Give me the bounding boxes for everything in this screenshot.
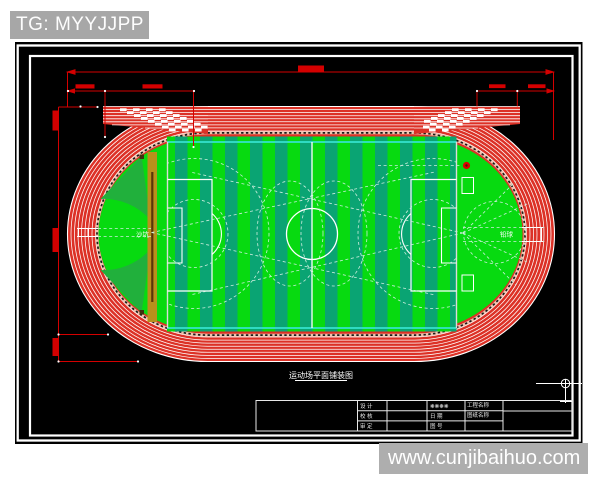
svg-text:铅球: 铅球 xyxy=(500,230,514,239)
svg-text:运动场平面铺装图: 运动场平面铺装图 xyxy=(289,370,353,380)
svg-text:❋❋❋❋: ❋❋❋❋ xyxy=(430,403,449,410)
svg-text:工程名称: 工程名称 xyxy=(467,401,490,409)
svg-text:图 号: 图 号 xyxy=(430,422,443,430)
svg-text:设 计: 设 计 xyxy=(360,402,373,410)
svg-text:图纸名称: 图纸名称 xyxy=(467,411,490,419)
svg-text:日 期: 日 期 xyxy=(430,413,443,420)
svg-text:校 核: 校 核 xyxy=(360,412,373,420)
svg-text:沙坑: 沙坑 xyxy=(136,230,150,239)
svg-text:审 定: 审 定 xyxy=(360,422,373,430)
